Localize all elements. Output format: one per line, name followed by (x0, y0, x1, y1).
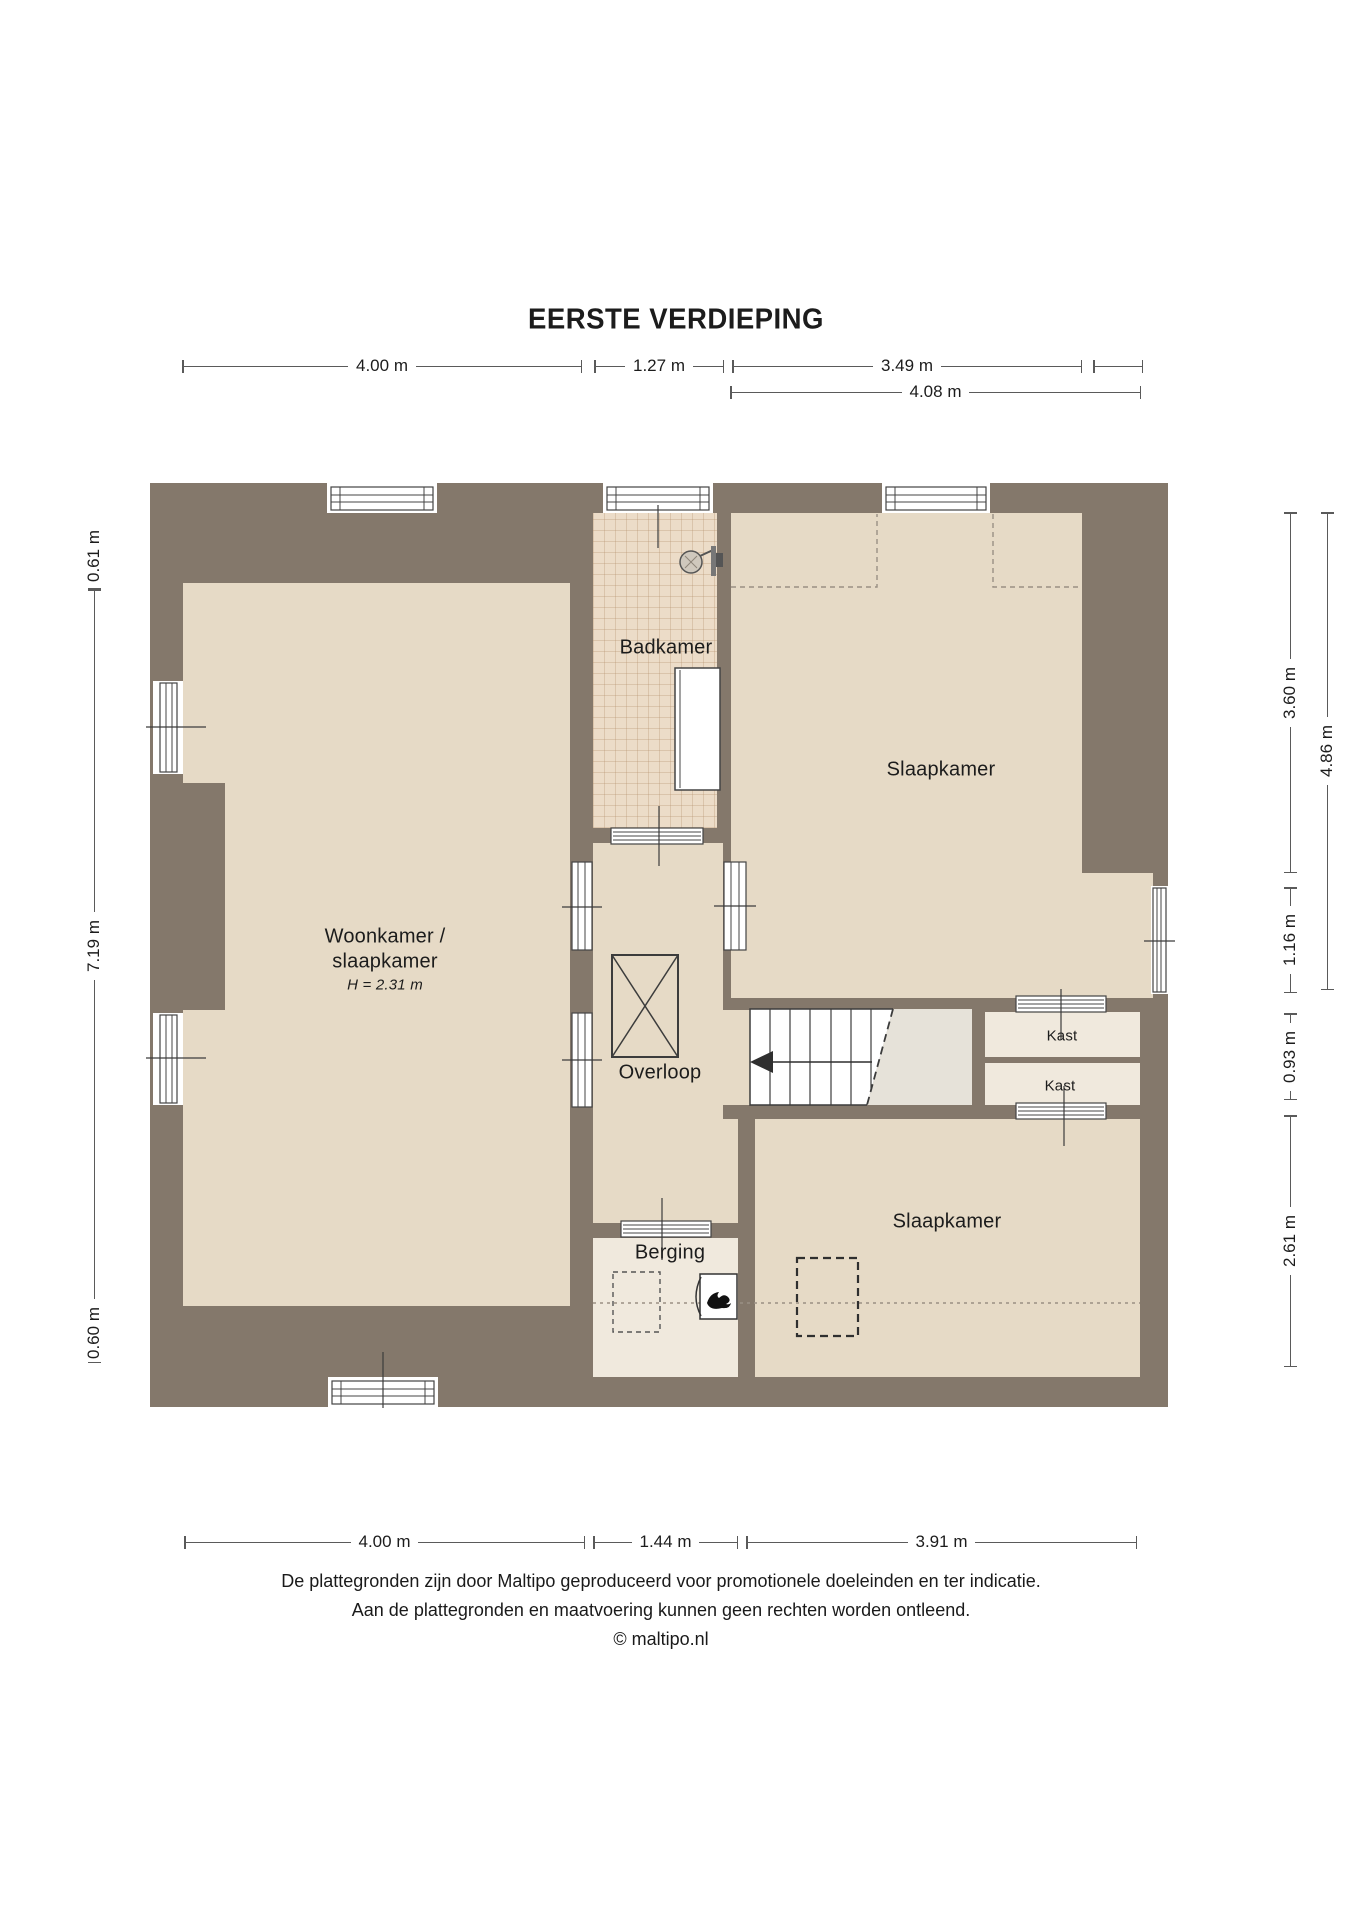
label-overloop: Overloop (619, 1062, 702, 1085)
dim-bottom-1-44: 1.44 m (593, 1542, 738, 1543)
label-slaapkamer-top: Slaapkamer (887, 759, 996, 782)
dim-left-0-60: 0.60 m (94, 1303, 95, 1363)
window-icon (146, 1013, 206, 1105)
boiler-icon (696, 1274, 737, 1319)
dim-bottom-3-91: 3.91 m (746, 1542, 1137, 1543)
label-woonkamer-line1: Woonkamer / (325, 925, 446, 950)
dim-top-1-27: 1.27 m (594, 366, 724, 367)
window-icon (603, 460, 713, 548)
window-icon (327, 460, 437, 513)
dim-right-1-16: 1.16 m (1290, 887, 1291, 993)
staircase (750, 1009, 972, 1105)
label-woonkamer-line2: slaapkamer (325, 950, 446, 975)
label-woonkamer: Woonkamer / slaapkamer H = 2.31 m (325, 925, 446, 996)
window-icon (1144, 886, 1175, 994)
label-berging: Berging (635, 1242, 705, 1265)
dim-top-4-00: 4.00 m (182, 366, 582, 367)
dim-top-small (1093, 366, 1143, 367)
ceiling-height-dashes (593, 514, 1140, 1303)
window-icon (146, 681, 206, 774)
label-kast-bottom: Kast (1045, 1078, 1076, 1095)
sliding-door-icon (611, 806, 703, 866)
label-kast-top: Kast (1047, 1028, 1078, 1045)
footer-disclaimer-line1: De plattegronden zijn door Maltipo gepro… (281, 1571, 1041, 1592)
dim-right-0-93: 0.93 m (1290, 1013, 1291, 1100)
dim-right-3-60: 3.60 m (1290, 512, 1291, 873)
dim-right-2-61: 2.61 m (1290, 1115, 1291, 1367)
dim-top-4-08: 4.08 m (730, 392, 1141, 393)
interior-window-icon (562, 862, 602, 950)
washstand-icon (675, 668, 720, 790)
shower-icon (680, 546, 723, 576)
dim-top-3-49: 3.49 m (732, 366, 1082, 367)
void-cross-icon (612, 955, 678, 1057)
footer-copyright: © maltipo.nl (613, 1629, 708, 1650)
dashed-storage-outline (613, 1272, 660, 1332)
dashed-closet-outline (797, 1258, 858, 1336)
sliding-door-icon (1016, 1086, 1106, 1146)
floorplan-page: EERSTE VERDIEPING (0, 0, 1358, 1920)
dim-right-4-86: 4.86 m (1327, 512, 1328, 990)
label-badkamer: Badkamer (620, 637, 713, 660)
interior-window-icon (714, 862, 756, 950)
label-woonkamer-height: H = 2.31 m (325, 975, 446, 996)
dim-left-7-19: 7.19 m (94, 589, 95, 1303)
dim-left-0-61: 0.61 m (94, 523, 95, 589)
label-slaapkamer-bottom: Slaapkamer (893, 1211, 1002, 1234)
dim-bottom-4-00: 4.00 m (184, 1542, 585, 1543)
window-icon (882, 460, 990, 513)
interior-window-icon (562, 1013, 602, 1107)
window-icon (328, 1352, 438, 1427)
footer-disclaimer-line2: Aan de plattegronden en maatvoering kunn… (352, 1600, 970, 1621)
